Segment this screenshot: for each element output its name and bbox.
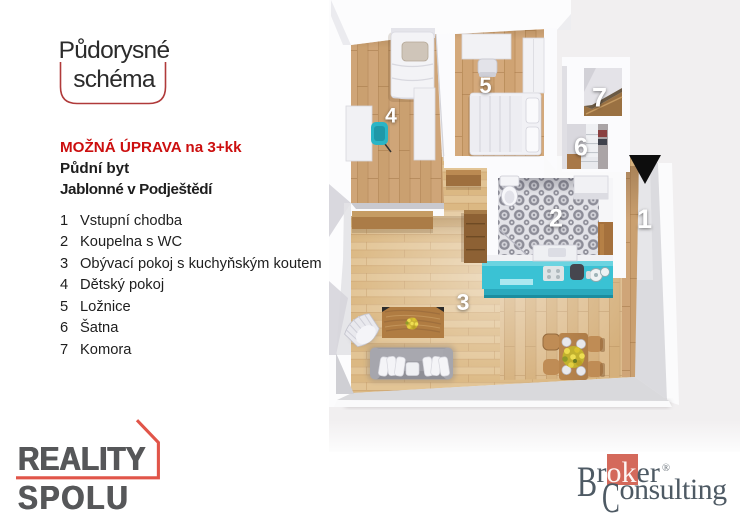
svg-text:6: 6 <box>574 134 588 162</box>
svg-text:4: 4 <box>385 105 397 128</box>
svg-text:5: 5 <box>479 73 491 98</box>
svg-text:7: 7 <box>592 83 607 113</box>
svg-text:1: 1 <box>637 204 652 234</box>
svg-text:3: 3 <box>457 289 470 315</box>
svg-text:2: 2 <box>549 205 563 233</box>
